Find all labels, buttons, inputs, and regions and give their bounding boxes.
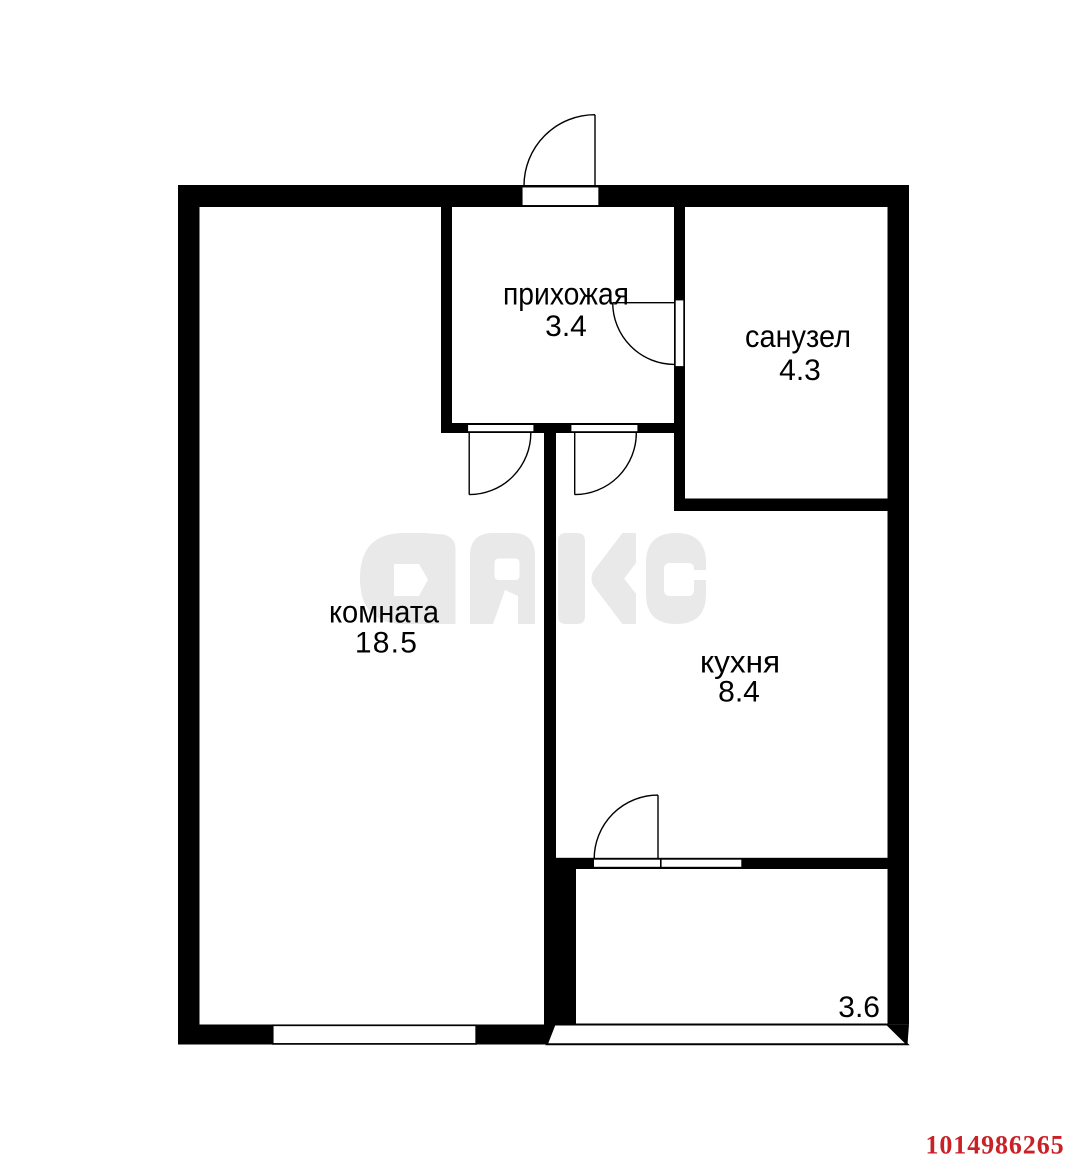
svg-text:3.4: 3.4	[545, 310, 587, 343]
svg-text:прихожая: прихожая	[503, 275, 629, 311]
svg-text:комната: комната	[329, 593, 439, 629]
svg-text:санузел: санузел	[745, 318, 851, 354]
svg-text:кухня: кухня	[700, 643, 780, 679]
svg-text:4.3: 4.3	[779, 354, 821, 387]
svg-text:3.6: 3.6	[838, 991, 880, 1024]
svg-text:1014986265: 1014986265	[926, 1130, 1065, 1159]
svg-text:18.5: 18.5	[355, 627, 418, 660]
svg-text:8.4: 8.4	[718, 676, 760, 709]
